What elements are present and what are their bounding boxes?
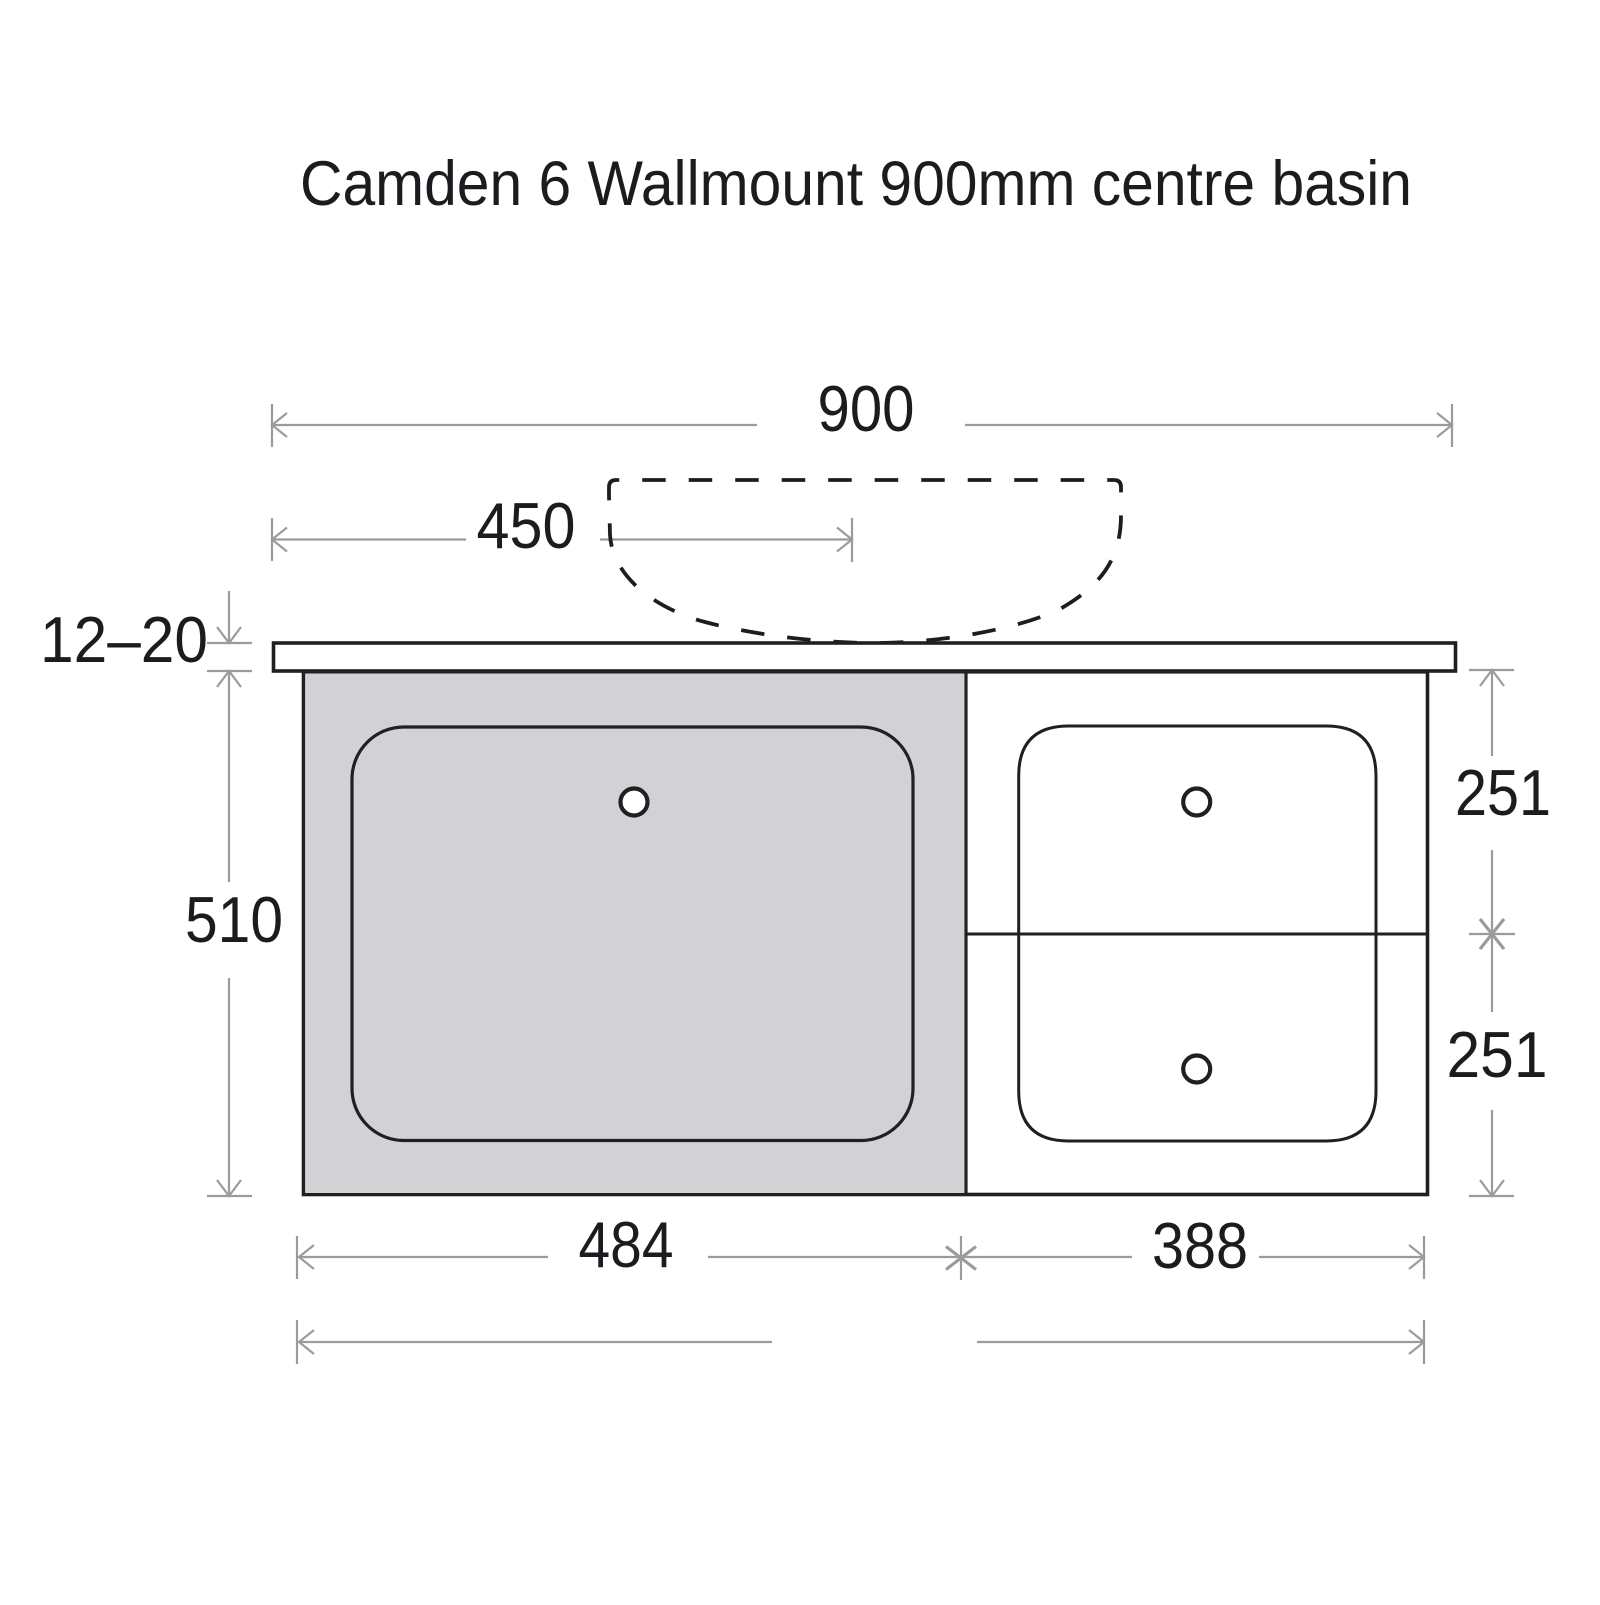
svg-text:450: 450 (477, 489, 576, 562)
svg-text:12–20: 12–20 (40, 603, 208, 676)
svg-text:510: 510 (185, 883, 283, 956)
svg-text:251: 251 (1447, 1018, 1548, 1091)
svg-text:484: 484 (579, 1208, 674, 1281)
svg-text:251: 251 (1455, 756, 1551, 829)
svg-text:Camden 6 Wallmount 900mm centr: Camden 6 Wallmount 900mm centre basin (300, 149, 1412, 219)
svg-text:388: 388 (1152, 1209, 1248, 1282)
svg-text:900: 900 (818, 372, 915, 445)
